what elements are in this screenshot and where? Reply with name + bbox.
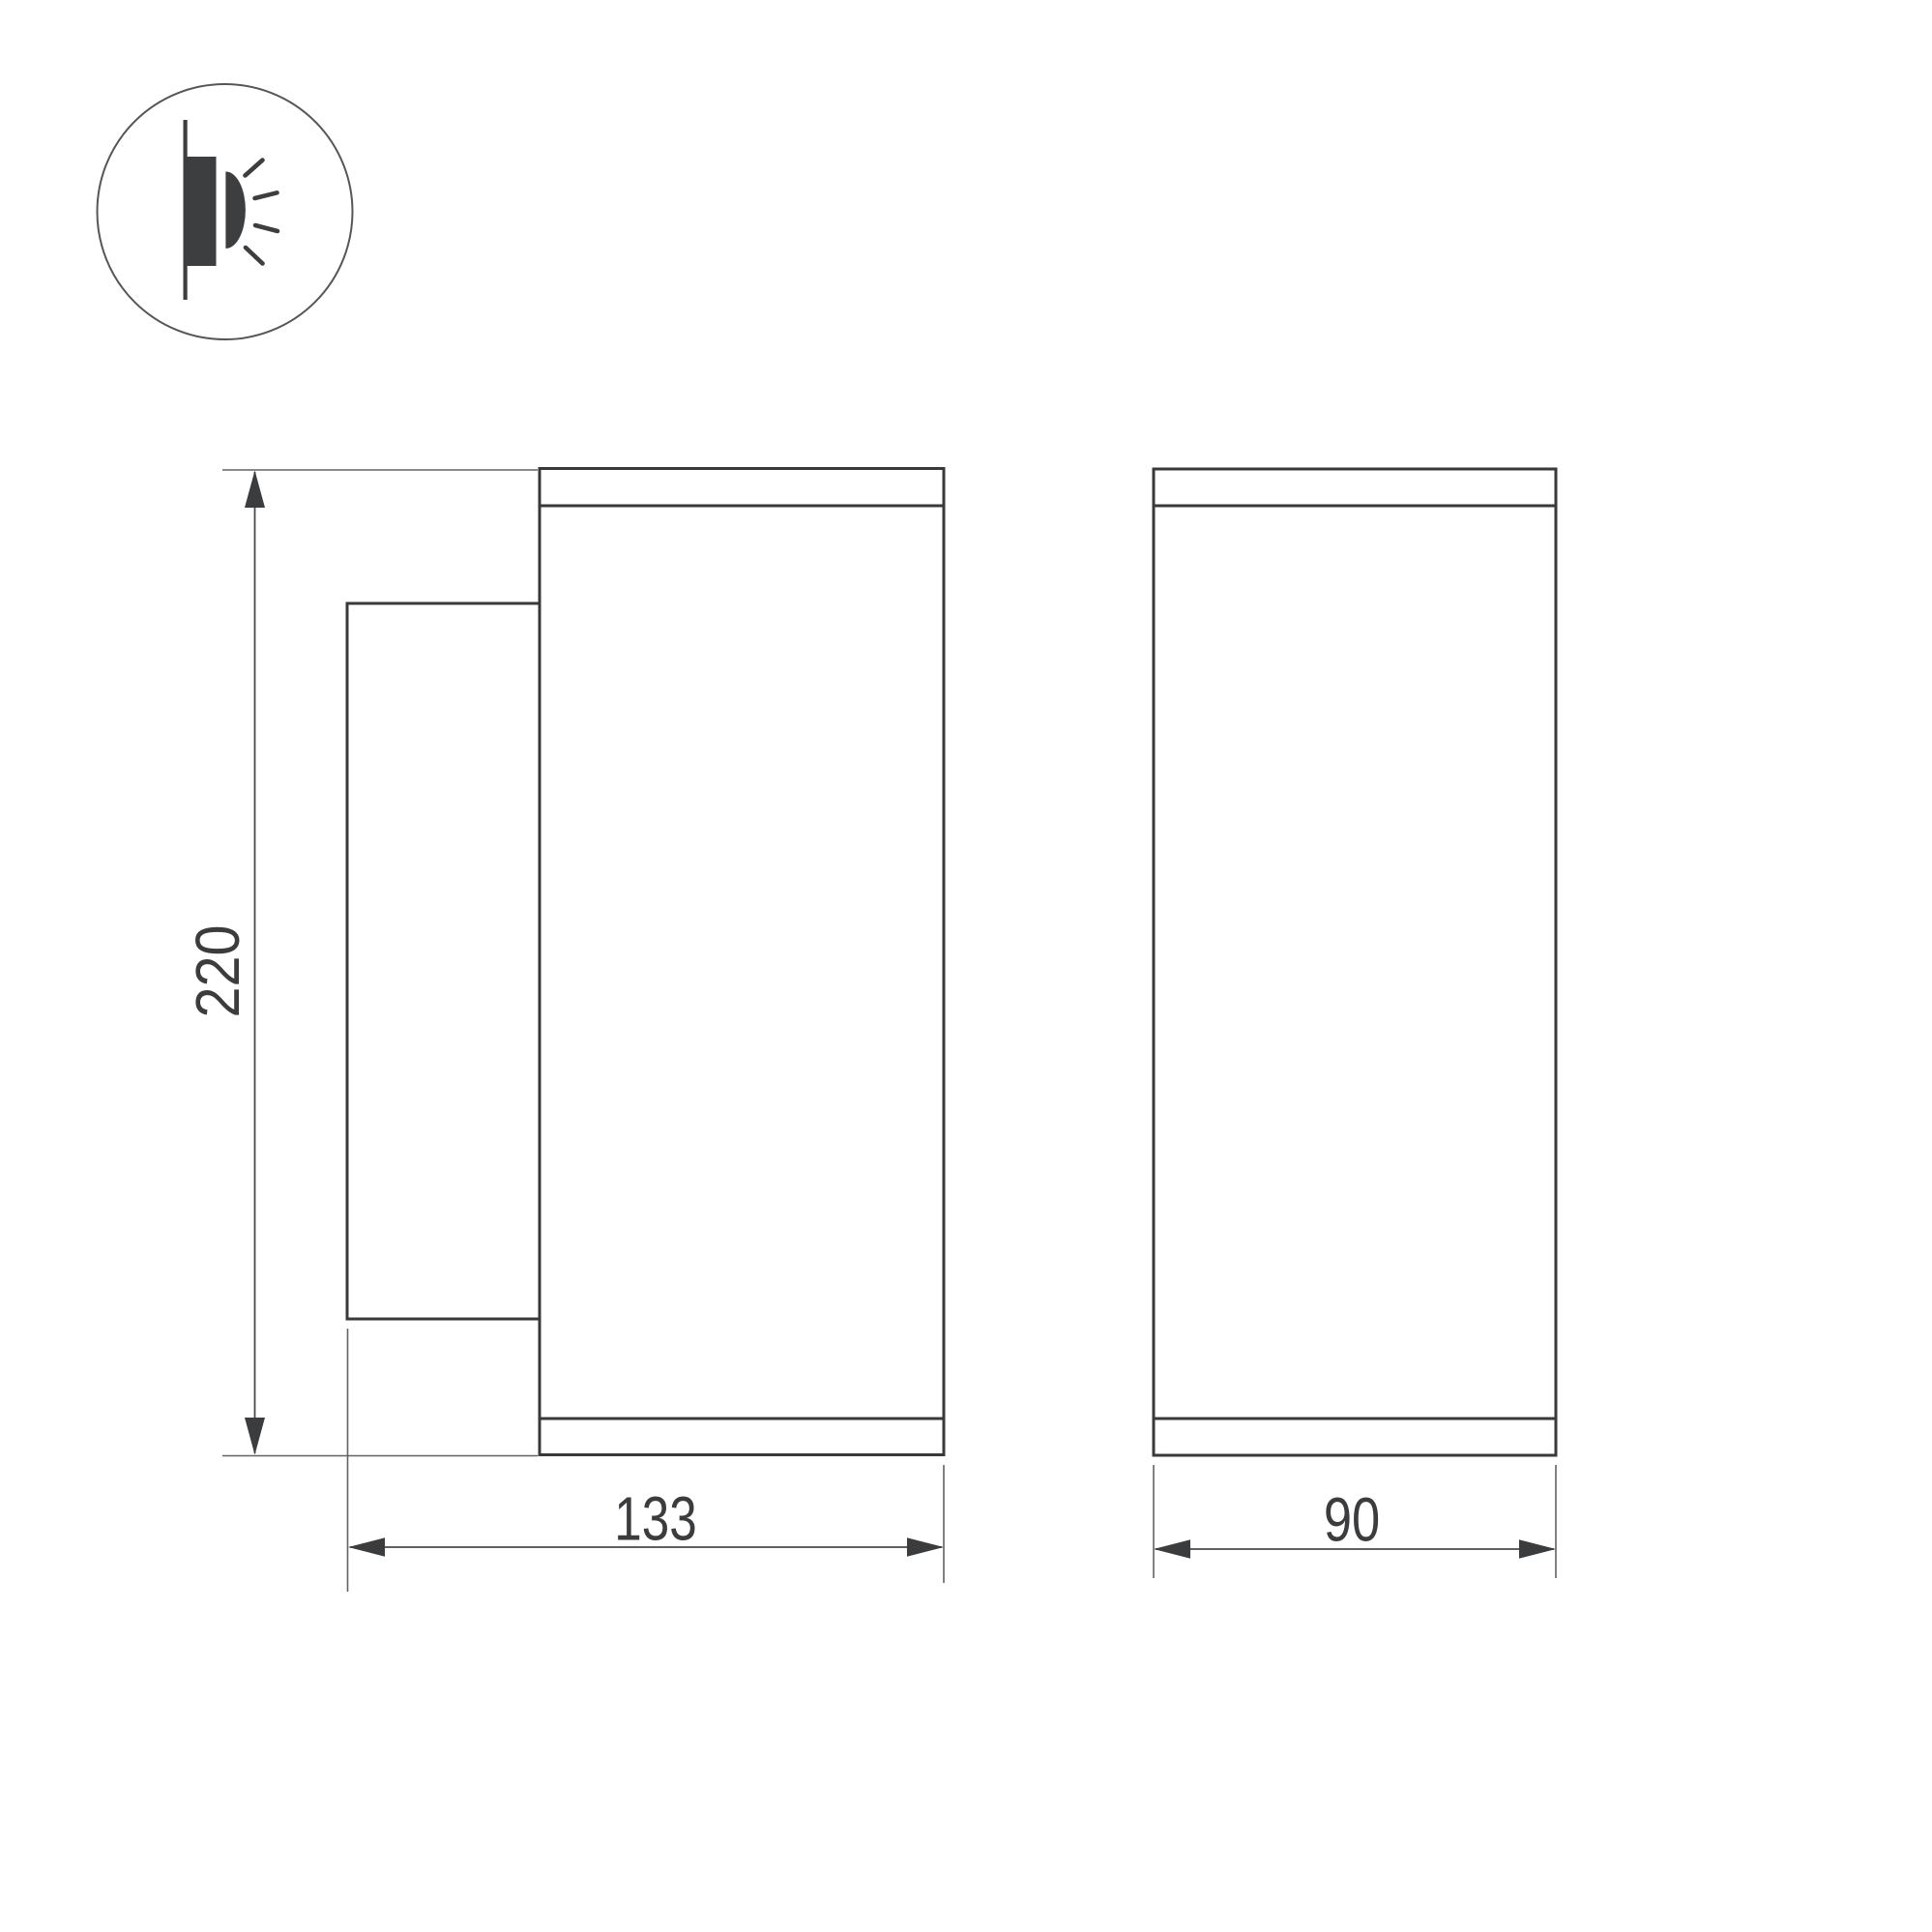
svg-text:133: 133 xyxy=(614,1485,696,1554)
svg-text:220: 220 xyxy=(183,924,251,1017)
svg-text:90: 90 xyxy=(1324,1486,1380,1555)
